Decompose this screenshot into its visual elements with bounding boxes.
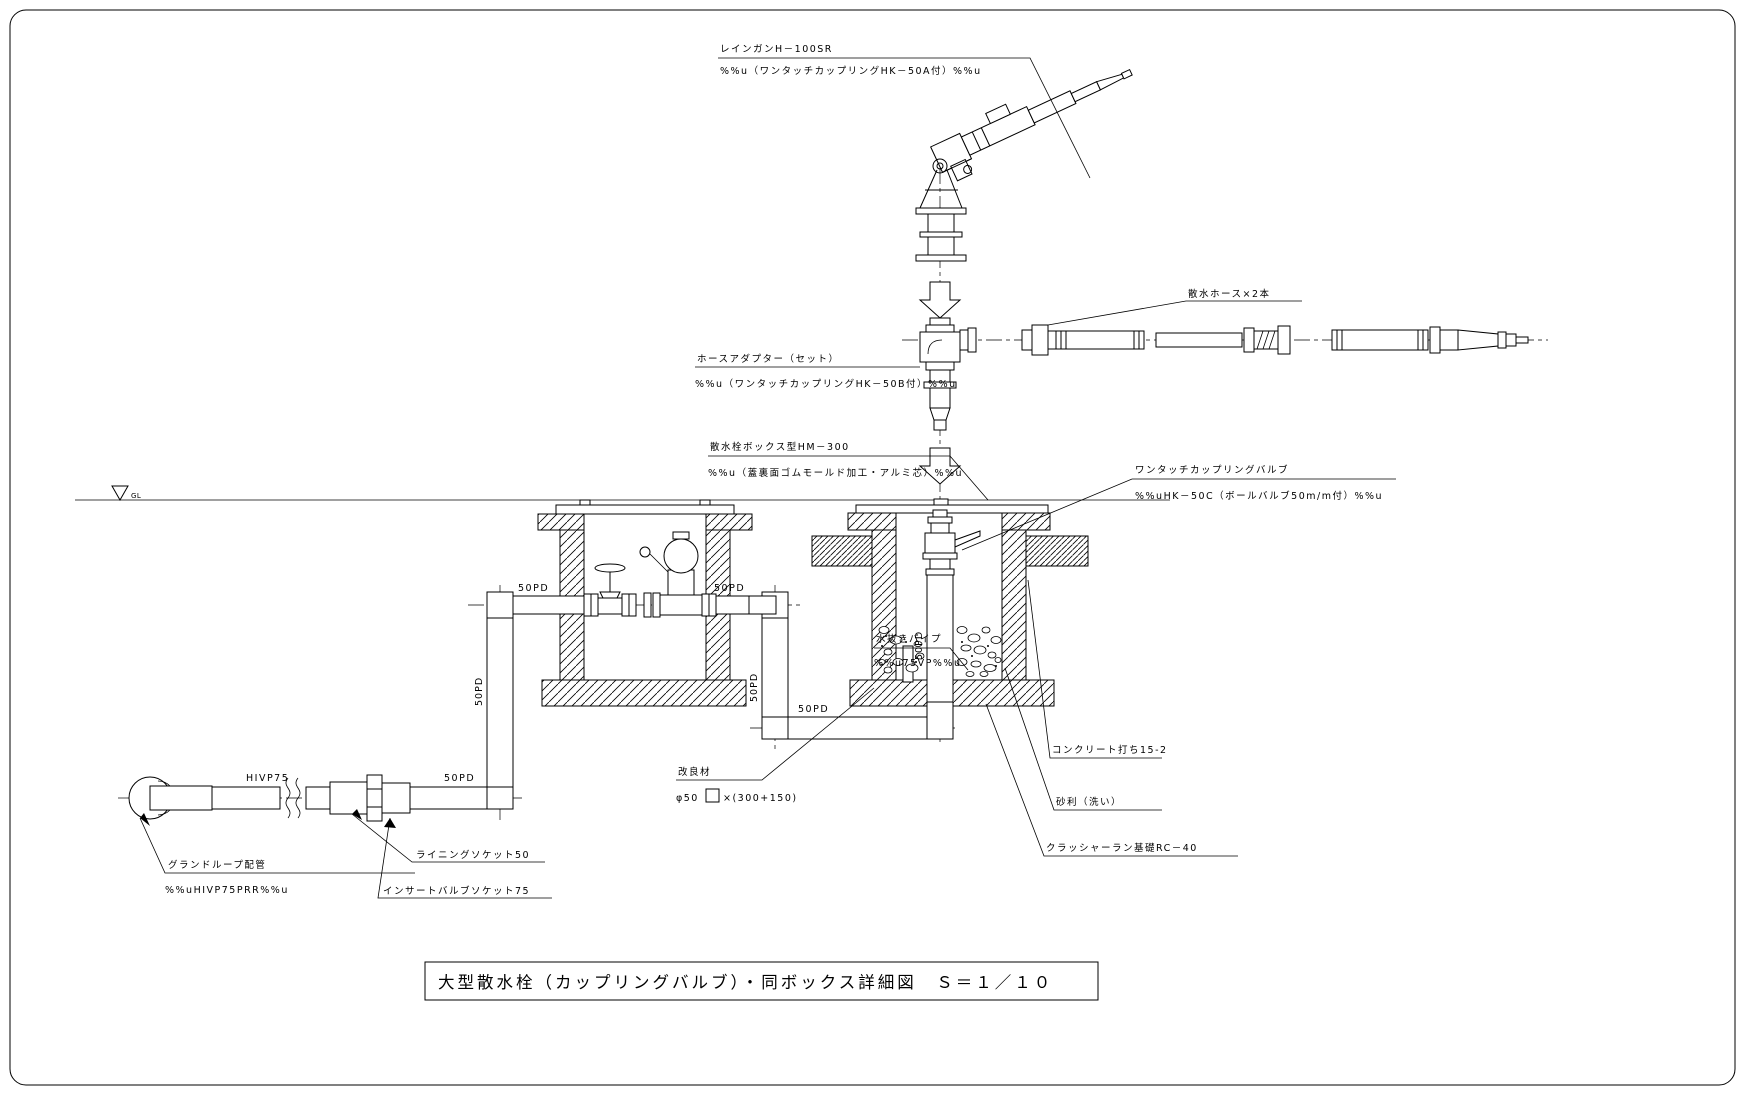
left-valve-box: [513, 500, 776, 706]
pipe-label-50pd-vertical: 50PD: [474, 677, 485, 706]
lining-socket-label: ライニングソケット50: [416, 849, 530, 861]
rain-gun-figure: [916, 51, 1141, 261]
right-valve-box: [812, 499, 1088, 717]
ground-loop-label-line1: グランドループ配管: [168, 859, 266, 871]
valve-box-label-line1: 散水栓ボックス型HM－300: [710, 441, 850, 453]
pipe-label-50pd: 50PD: [444, 773, 475, 784]
hose-adapter-figure: [920, 318, 976, 430]
flow-arrow-icon: [920, 282, 960, 318]
callout-texts: レインガンH－100SR %%u（ワンタッチカップリングHK－50A付）%%u …: [165, 44, 1383, 897]
coupling-valve-label-line1: ワンタッチカップリングバルブ: [1135, 464, 1289, 476]
improved-soil-spec-prefix: φ50: [676, 793, 699, 804]
concrete-label: コンクリート打ち15-2: [1052, 744, 1168, 756]
drain-pipe-label-line1: 水抜きパイプ: [876, 633, 942, 645]
title-block: 大型散水栓（カップリングバルブ）・同ボックス詳細図 Ｓ＝１／１０: [425, 962, 1098, 1000]
insert-socket-label: インサートバルブソケット75: [383, 885, 530, 897]
valve-lever: [955, 531, 980, 547]
pipe-label-50pd: 50PD: [714, 583, 745, 594]
drawing-sheet: GL: [0, 0, 1745, 1095]
ground-loop-label-line2: %%uHIVP75PRR%%u: [165, 885, 289, 896]
ground-line: GL: [75, 486, 1170, 500]
drawing-title: 大型散水栓（カップリングバルブ）・同ボックス詳細図 Ｓ＝１／１０: [438, 972, 1053, 992]
buried-piping: [129, 592, 953, 821]
rain-gun-label-line2: %%u（ワンタッチカップリングHK－50A付）%%u: [720, 65, 982, 77]
hose-adapter-label-line1: ホースアダプター（セット）: [697, 353, 840, 365]
pipe-label-50pd-vertical: 50PD: [749, 673, 760, 702]
rain-gun-label-line1: レインガンH－100SR: [720, 44, 833, 55]
pipe-label-50pd: 50PD: [798, 704, 829, 715]
improved-soil-label: 改良材: [678, 766, 711, 778]
gl-label: GL: [131, 492, 141, 500]
valve-box-label-line2: %%u（蓋裏面ゴムモールド加工・アルミ芯）%%u: [708, 467, 963, 479]
hose-line-figure: [1022, 325, 1528, 355]
cad-drawing: GL: [0, 0, 1745, 1095]
pipe-label-hivp75: HIVP75: [246, 773, 289, 784]
crusher-run-label: クラッシャーラン基礎RC－40: [1046, 842, 1198, 854]
coupling-valve-label-line2: %%uHK－50C（ボールバルブ50m/m付）%%u: [1135, 490, 1383, 502]
gl-triangle-icon: [112, 486, 128, 500]
improved-soil-spec-suffix: ×(300+150): [723, 793, 798, 804]
square-symbol-icon: [706, 789, 719, 802]
hose-label: 散水ホース×2本: [1188, 288, 1271, 300]
pipe-label-50pd-vertical: 50PD: [914, 631, 925, 660]
pipe-label-50pd: 50PD: [518, 583, 549, 594]
gravel-label: 砂利（洗い）: [1056, 796, 1122, 808]
hose-adapter-label-line2: %%u（ワンタッチカップリングHK－50B付）%%u: [695, 378, 957, 390]
